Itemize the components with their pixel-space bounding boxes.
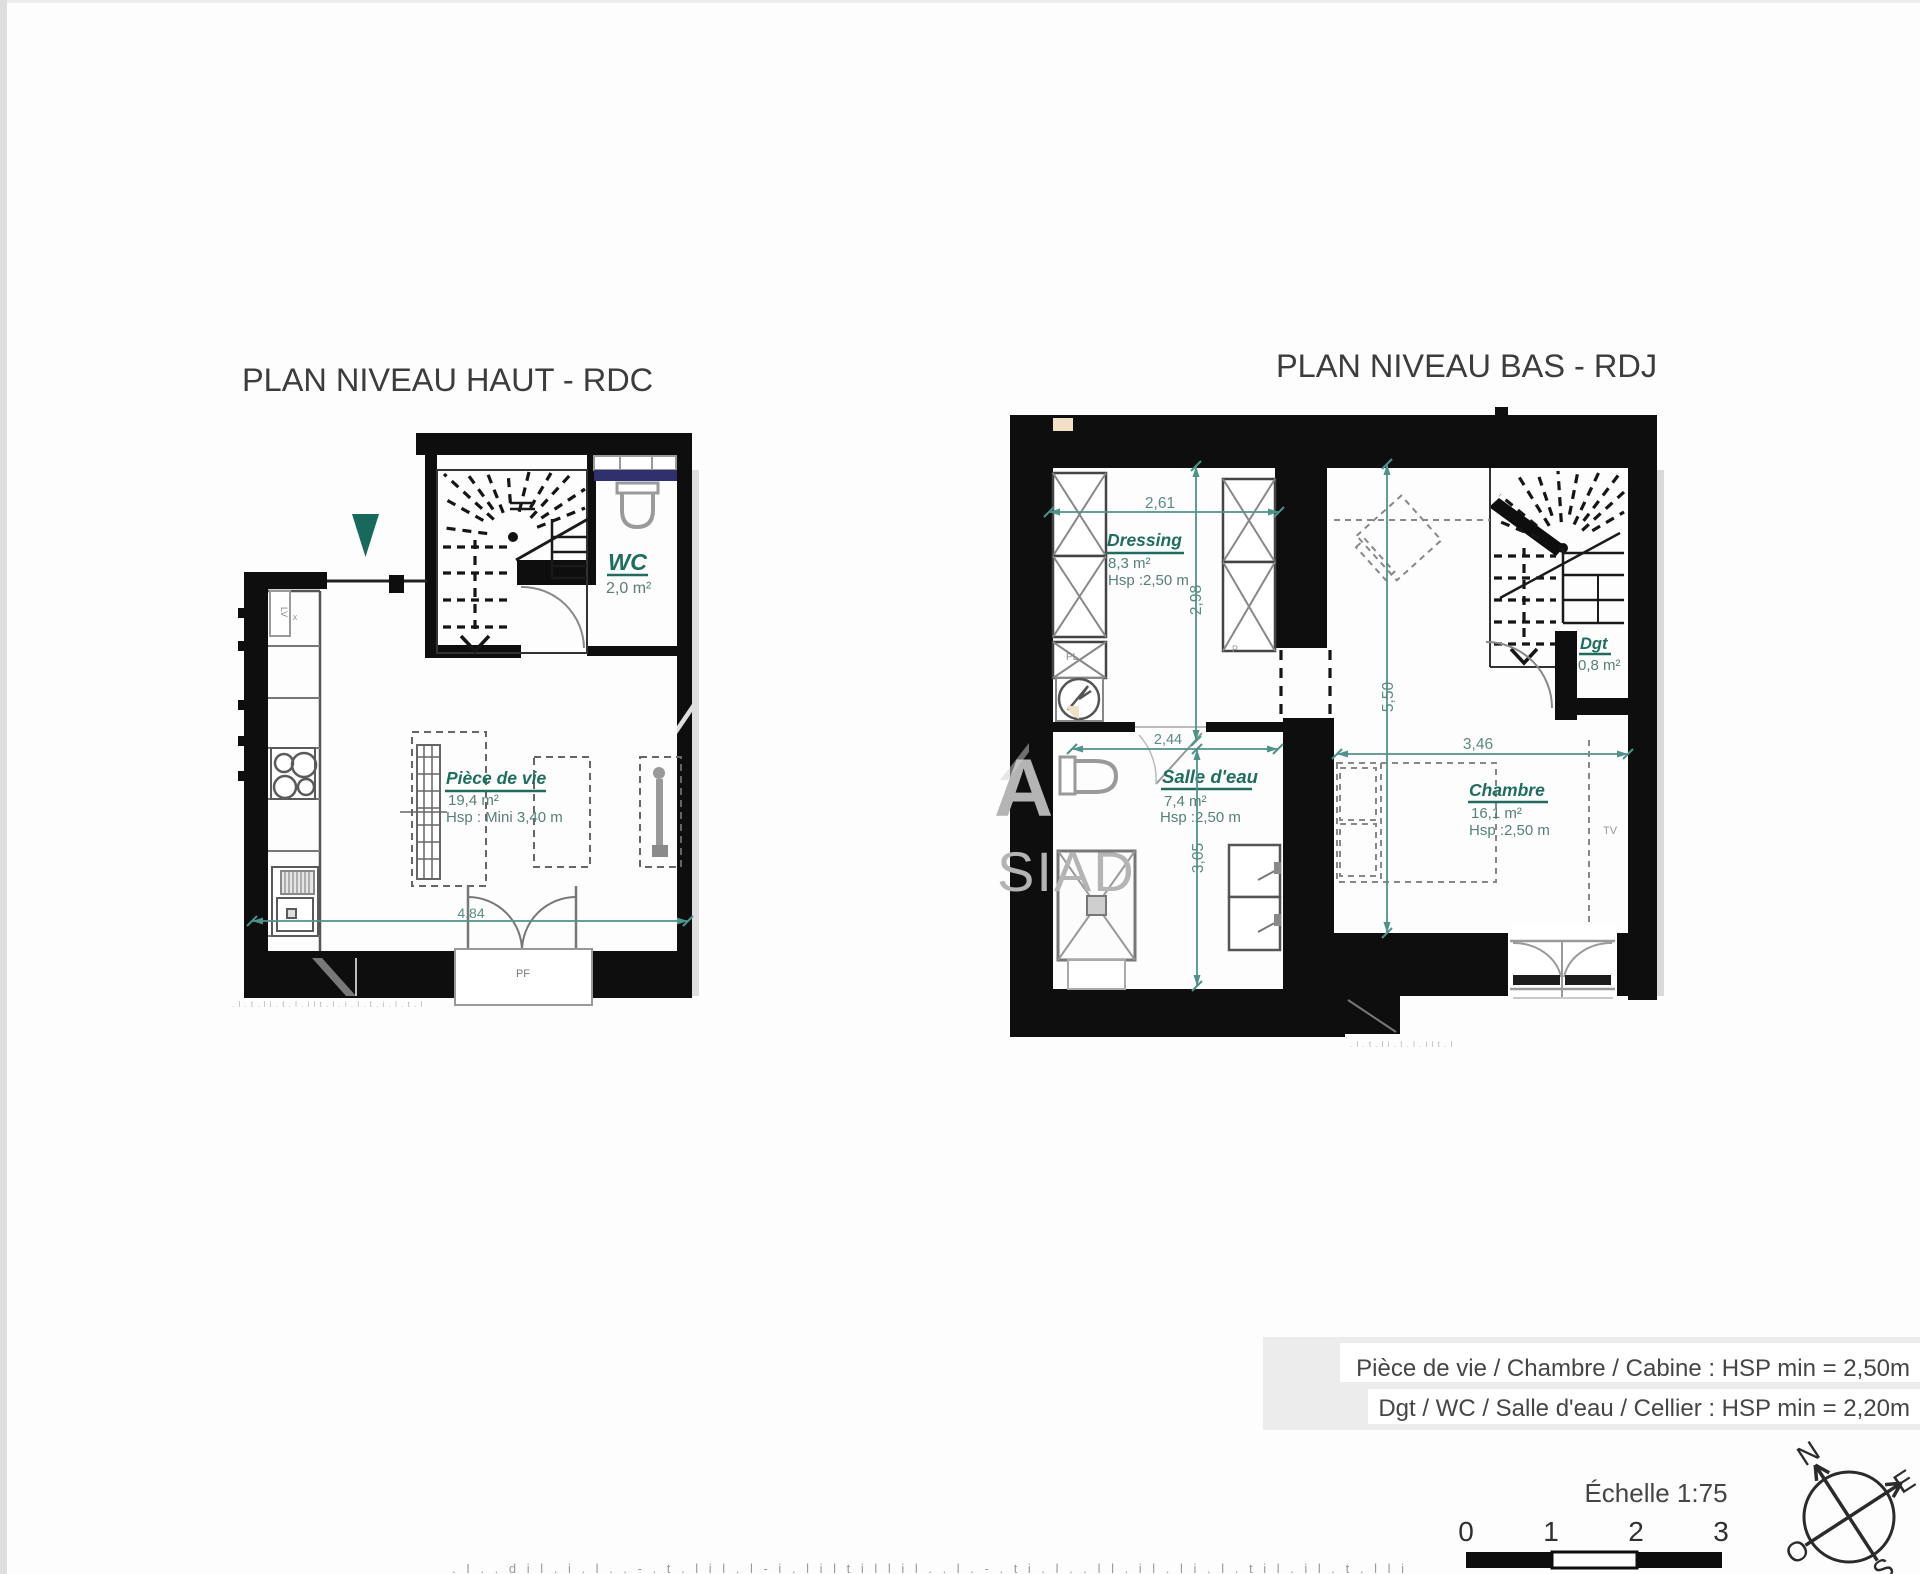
svg-text:19,4 m²: 19,4 m²	[448, 792, 499, 809]
svg-text:Hsp :2,50 m: Hsp :2,50 m	[1108, 572, 1189, 589]
svg-text:Hsp :2,50 m: Hsp :2,50 m	[1469, 822, 1550, 839]
svg-text:P: P	[1232, 644, 1238, 654]
svg-text:PLAN NIVEAU HAUT - RDC: PLAN NIVEAU HAUT - RDC	[242, 362, 653, 398]
svg-text:Échelle 1:75: Échelle 1:75	[1584, 1478, 1727, 1508]
svg-text:. l . t . l i . t . l . i l t: . l . t . l i . t . l . i l t . l	[1350, 1040, 1453, 1049]
svg-text:x: x	[293, 612, 298, 622]
svg-text:TV: TV	[1603, 825, 1618, 837]
svg-text:2,98: 2,98	[1188, 585, 1205, 615]
svg-text:Dgt: Dgt	[1580, 635, 1609, 653]
svg-text:Salle d'eau: Salle d'eau	[1162, 766, 1258, 787]
svg-text:2,44: 2,44	[1154, 732, 1182, 748]
svg-text:. I . . d i l . i . l . . - .: . I . . d i l . i . l . . - . t . l i l …	[452, 1561, 1408, 1574]
svg-text:8,3 m²: 8,3 m²	[1108, 555, 1151, 572]
svg-text:7,4 m²: 7,4 m²	[1164, 793, 1207, 810]
svg-text:1: 1	[1543, 1516, 1559, 1547]
svg-text:Hsp : Mini 3,40 m: Hsp : Mini 3,40 m	[446, 809, 563, 826]
svg-text:Pièce de vie: Pièce de vie	[446, 768, 546, 788]
svg-text:Hsp :2,50 m: Hsp :2,50 m	[1160, 809, 1241, 826]
svg-text:3,46: 3,46	[1463, 736, 1493, 753]
svg-text:PL: PL	[1066, 652, 1079, 663]
svg-text:Dressing: Dressing	[1107, 530, 1182, 550]
svg-text:. l . t . l i . t . l . i l t: . l . t . l i . t . l . i l t . l . i . …	[232, 1000, 423, 1009]
svg-text:3: 3	[1713, 1516, 1729, 1547]
svg-text:2,0 m²: 2,0 m²	[606, 580, 652, 597]
svg-text:5,50: 5,50	[1380, 682, 1397, 713]
svg-text:0: 0	[1458, 1516, 1474, 1547]
svg-text:Dgt / WC / Salle d'eau / Celli: Dgt / WC / Salle d'eau / Cellier : HSP m…	[1378, 1395, 1910, 1422]
svg-text:Pièce de vie / Chambre / Cabin: Pièce de vie / Chambre / Cabine : HSP mi…	[1356, 1355, 1910, 1382]
svg-text:WC: WC	[608, 549, 648, 575]
svg-text:2: 2	[1628, 1516, 1644, 1547]
svg-text:0,8 m²: 0,8 m²	[1578, 657, 1621, 674]
svg-text:SIAD: SIAD	[997, 840, 1136, 903]
svg-text:16,1 m²: 16,1 m²	[1471, 805, 1522, 822]
svg-text:3,05: 3,05	[1190, 843, 1207, 873]
svg-text:4,84: 4,84	[457, 905, 484, 921]
svg-text:2,61: 2,61	[1145, 495, 1175, 512]
svg-text:LV: LV	[279, 607, 289, 617]
svg-text:PLAN NIVEAU BAS - RDJ: PLAN NIVEAU BAS - RDJ	[1276, 348, 1657, 384]
svg-text:Chambre: Chambre	[1469, 780, 1545, 800]
svg-text:PF: PF	[516, 968, 530, 980]
